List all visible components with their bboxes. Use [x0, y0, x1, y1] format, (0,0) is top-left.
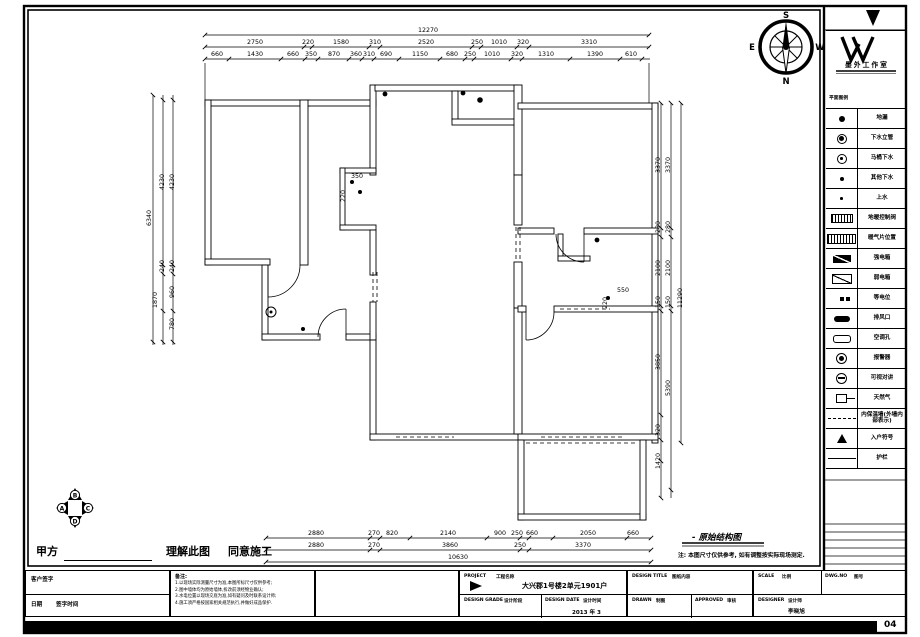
- dim-label: 2050: [580, 531, 596, 537]
- legend-item: 等电位: [826, 289, 906, 309]
- legend-label: 报警器: [858, 356, 906, 362]
- divider: [821, 571, 822, 594]
- toilet-drain-icon: [837, 154, 847, 164]
- dwg-label-cn: 图号: [854, 574, 863, 580]
- designer-label-cn: 设计师: [788, 598, 802, 604]
- divider: [628, 594, 752, 595]
- project-label-en: PROJECT: [464, 574, 486, 579]
- scale-label-en: SCALE: [758, 574, 774, 579]
- legend-item: 空调孔: [826, 329, 906, 349]
- heating-valve-icon: [831, 214, 853, 223]
- alarm-icon: [836, 353, 847, 364]
- weak-elec-box-icon: [832, 274, 852, 284]
- divider: [754, 594, 905, 595]
- dim-label: 250: [511, 531, 523, 537]
- legend-label: 地暖控制阀: [858, 216, 906, 222]
- dim-label: 240: [160, 260, 166, 272]
- compass-w: W: [815, 43, 825, 53]
- dim-label: 3310: [581, 40, 597, 46]
- legend-label: 入户符号: [858, 436, 906, 442]
- legend-table: 地漏下水立管马桶下水其他下水上水地暖控制阀暖气片位置强电箱弱电箱等电位排风口空调…: [826, 108, 906, 469]
- design-date-label-cn: 设计时间: [583, 598, 601, 604]
- dim-label: 320: [511, 52, 523, 58]
- dim-label: 5390: [666, 380, 672, 396]
- legend-item: 地暖控制阀: [826, 209, 906, 229]
- radiator-icon: [827, 234, 856, 244]
- dim-label: 4230: [160, 174, 166, 190]
- dim-label: 660: [526, 531, 538, 537]
- legend-item: 护栏: [826, 449, 906, 469]
- other-drain-icon: [840, 177, 844, 181]
- legend-label: 地漏: [858, 116, 906, 122]
- legend-triangle-icon: [866, 10, 880, 26]
- dim-label: 240: [170, 260, 176, 272]
- approved-label-en: APPROVED: [695, 598, 723, 603]
- legend-label: 上水: [858, 196, 906, 202]
- dim-label: 250: [514, 543, 526, 549]
- project-value: 大兴郡1号楼2单元1901户: [522, 581, 607, 591]
- dim-label: 1010: [484, 52, 500, 58]
- entry-symbol-icon: [837, 434, 847, 443]
- sign-date-note: 签字时间: [56, 600, 78, 608]
- dim-label: 320: [517, 40, 529, 46]
- legend-item: 地漏: [826, 109, 906, 129]
- insulation-wall-icon: [828, 418, 856, 419]
- legend-label: 等电位: [858, 296, 906, 302]
- strong-elec-box-icon: [833, 255, 851, 263]
- dim-label: 660: [287, 52, 299, 58]
- dim-label: 2100: [666, 260, 672, 276]
- marker-b: B: [73, 493, 78, 500]
- compass-icon: S N E W: [749, 11, 825, 87]
- video-intercom-icon: [836, 373, 847, 384]
- dim-label: 12270: [418, 28, 438, 34]
- divider: [541, 595, 542, 618]
- legend-item: 可视对讲: [826, 369, 906, 389]
- titleblock-project-cell: PROJECT 工程名称 大兴郡1号楼2单元1901户 DESIGN GRADE…: [459, 570, 627, 617]
- dim-label: 2140: [440, 531, 456, 537]
- divider: [26, 594, 169, 595]
- dim-label: 250: [464, 52, 476, 58]
- design-title-label-cn: 图纸内容: [672, 574, 690, 580]
- dim-label: 1390: [587, 52, 603, 58]
- agree-label: 同意施工: [228, 543, 272, 559]
- walls: [205, 85, 658, 520]
- designer-value: 李晓旭: [788, 607, 805, 615]
- dim-label: 310: [363, 52, 375, 58]
- equipotential-icon: [840, 297, 844, 301]
- compass-e: E: [749, 43, 755, 53]
- dim-label: 1310: [538, 52, 554, 58]
- legend-label: 排风口: [858, 316, 906, 322]
- dwg-label-en: DWG.NO: [825, 574, 847, 579]
- sign-date-label: 日期: [31, 600, 42, 608]
- dim-label: 320: [656, 424, 662, 436]
- doors: [268, 234, 584, 340]
- compass-n: N: [782, 77, 789, 87]
- dim-label: 610: [625, 52, 637, 58]
- studio-name: 墨外工作室: [830, 59, 904, 69]
- titleblock-remarks-cell: 备注: 1.以现场实际测量尺寸为准,本图所标尺寸仅供参考;2.图中墙体均为原始墙…: [170, 570, 315, 617]
- sheet-borders: [24, 6, 906, 633]
- legend-item: 弱电箱: [826, 269, 906, 289]
- dim-label: 690: [380, 52, 392, 58]
- remark-label: 备注:: [175, 573, 187, 580]
- dim-label: 2750: [247, 40, 263, 46]
- approved-label-cn: 审核: [727, 598, 736, 604]
- dim-label: 1150: [412, 52, 428, 58]
- caption-underline: [682, 543, 764, 546]
- understand-label: 理解此图: [166, 543, 210, 559]
- dim-label: 900: [494, 531, 506, 537]
- legend-item: 排风口: [826, 309, 906, 329]
- dim-label: 660: [211, 52, 223, 58]
- client-sign-label: 客户签字: [31, 575, 53, 583]
- legend-label: 马桶下水: [858, 156, 906, 162]
- marker-a: A: [60, 506, 65, 513]
- dim-label: 780: [170, 318, 176, 330]
- remark-lines: 1.以现场实际测量尺寸为准,本图所标尺寸仅供参考;2.图中墙体均为原始墙体,拆改…: [175, 581, 276, 608]
- dim-label: 350: [351, 174, 363, 180]
- titleblock-title-cell: DESIGN TITLE 图纸内容 DRAWN 制图 APPROVED 审核: [627, 570, 753, 617]
- dim-label: 660: [627, 531, 639, 537]
- legend-label: 其他下水: [858, 176, 906, 182]
- dim-label: 150: [656, 296, 662, 308]
- dim-label: 10630: [448, 555, 468, 561]
- legend-item: 强电箱: [826, 249, 906, 269]
- marker-c: C: [86, 506, 91, 513]
- legend-section-label: 平面图例: [829, 94, 848, 101]
- plumbing-symbols: [266, 91, 610, 331]
- dim-label: 960: [170, 286, 176, 298]
- dim-label: 1010: [491, 40, 507, 46]
- ac-hole-icon: [833, 335, 851, 343]
- legend-item: 马桶下水: [826, 149, 906, 169]
- legend-label: 内保温墙(外墙内部表示): [858, 413, 906, 425]
- dim-label: 1420: [656, 453, 662, 469]
- legend-item: 暖气片位置: [826, 229, 906, 249]
- design-title-label-en: DESIGN TITLE: [632, 574, 667, 579]
- project-arrow-icon: [470, 581, 482, 591]
- floor-drain-icon: [839, 116, 845, 122]
- marker-d: D: [73, 519, 78, 526]
- drawn-label-cn: 制图: [656, 598, 665, 604]
- dim-label: 250: [471, 40, 483, 46]
- dim-label: 1870: [153, 292, 159, 308]
- page-number: 04: [884, 620, 897, 630]
- natural-gas-icon: [836, 394, 847, 403]
- dim-label: 310: [369, 40, 381, 46]
- titleblock-empty-cell: [315, 570, 459, 617]
- drawing-sheet: S N E W A B C D 122702750220158031025202…: [0, 0, 920, 637]
- compass-s: S: [783, 11, 789, 21]
- elevation-markers: A B C D: [56, 488, 94, 528]
- dim-label: 3860: [442, 543, 458, 549]
- dim-label: 870: [328, 52, 340, 58]
- legend-label: 天然气: [858, 396, 906, 402]
- dim-label: 1430: [247, 52, 263, 58]
- design-grade-label-en: DESIGN GRADE: [464, 598, 503, 603]
- design-date-value: 2013 年 3: [572, 608, 601, 616]
- legend-item: 入户符号: [826, 429, 906, 449]
- dim-label: 2520: [418, 40, 434, 46]
- divider: [460, 594, 626, 595]
- dim-label: 360: [350, 52, 362, 58]
- studio-logo-icon: [842, 37, 873, 60]
- dim-label: 220: [302, 40, 314, 46]
- design-grade-label-cn: 设计阶段: [504, 598, 522, 604]
- legend-item: 天然气: [826, 389, 906, 409]
- signature-line: [64, 560, 152, 561]
- dim-label: 150: [666, 296, 672, 308]
- legend-label: 暖气片位置: [858, 236, 906, 242]
- dim-label: 280: [666, 221, 672, 233]
- dim-label: 270: [368, 543, 380, 549]
- scale-label-cn: 比例: [782, 574, 791, 580]
- openings-dashed: [373, 227, 638, 443]
- legend-label: 空调孔: [858, 336, 906, 342]
- dim-label: 11290: [678, 288, 684, 308]
- design-date-label-en: DESIGN DATE: [545, 598, 579, 603]
- legend-item: 下水立管: [826, 129, 906, 149]
- dim-label: 220: [603, 297, 609, 309]
- water-supply-icon: [840, 197, 843, 200]
- dim-label: 3370: [656, 157, 662, 173]
- dim-label: 4230: [170, 174, 176, 190]
- dim-label: 3850: [656, 354, 662, 370]
- dim-label: 280: [656, 221, 662, 233]
- dim-label: 350: [305, 52, 317, 58]
- titleblock-scale-cell: SCALE 比例 DWG.NO 图号 DESIGNER 设计师 李晓旭: [753, 570, 906, 617]
- dim-label: 6340: [147, 210, 153, 226]
- dim-label: 2880: [308, 543, 324, 549]
- divider: [691, 595, 692, 618]
- dim-label: 3370: [575, 543, 591, 549]
- railing-icon: [828, 458, 856, 459]
- exhaust-vent-icon: [834, 316, 850, 322]
- dim-label: 680: [446, 52, 458, 58]
- drawn-label-en: DRAWN: [632, 598, 652, 603]
- floor-plan: S N E W A B C D: [0, 0, 920, 637]
- dim-label: 220: [341, 190, 347, 202]
- legend-label: 下水立管: [858, 136, 906, 142]
- legend-label: 弱电箱: [858, 276, 906, 282]
- legend-item: 报警器: [826, 349, 906, 369]
- legend-item: 上水: [826, 189, 906, 209]
- sewer-standpipe-icon: [837, 134, 847, 144]
- legend-label: 强电箱: [858, 256, 906, 262]
- project-label-cn: 工程名称: [496, 574, 514, 580]
- plan-caption-title: - 原始结构图: [692, 531, 741, 543]
- dim-label: 3370: [666, 157, 672, 173]
- footer-bar: [25, 621, 877, 633]
- dim-label: 2100: [656, 260, 662, 276]
- legend-item: 内保温墙(外墙内部表示): [826, 409, 906, 429]
- designer-label-en: DESIGNER: [758, 598, 784, 603]
- plan-caption-note: 注: 本图尺寸仅供参考, 如有调整按实际现场测定.: [678, 550, 805, 559]
- dim-label: 820: [386, 531, 398, 537]
- dim-label: 550: [617, 288, 629, 294]
- dim-label: 270: [368, 531, 380, 537]
- legend-label: 可视对讲: [858, 376, 906, 382]
- legend-label: 护栏: [858, 456, 906, 462]
- dim-label: 1580: [333, 40, 349, 46]
- legend-item: 其他下水: [826, 169, 906, 189]
- party-a-label: 甲方: [36, 543, 58, 559]
- titleblock-client-cell: 客户签字 日期 签字时间: [25, 570, 170, 617]
- dim-label: 2880: [308, 531, 324, 537]
